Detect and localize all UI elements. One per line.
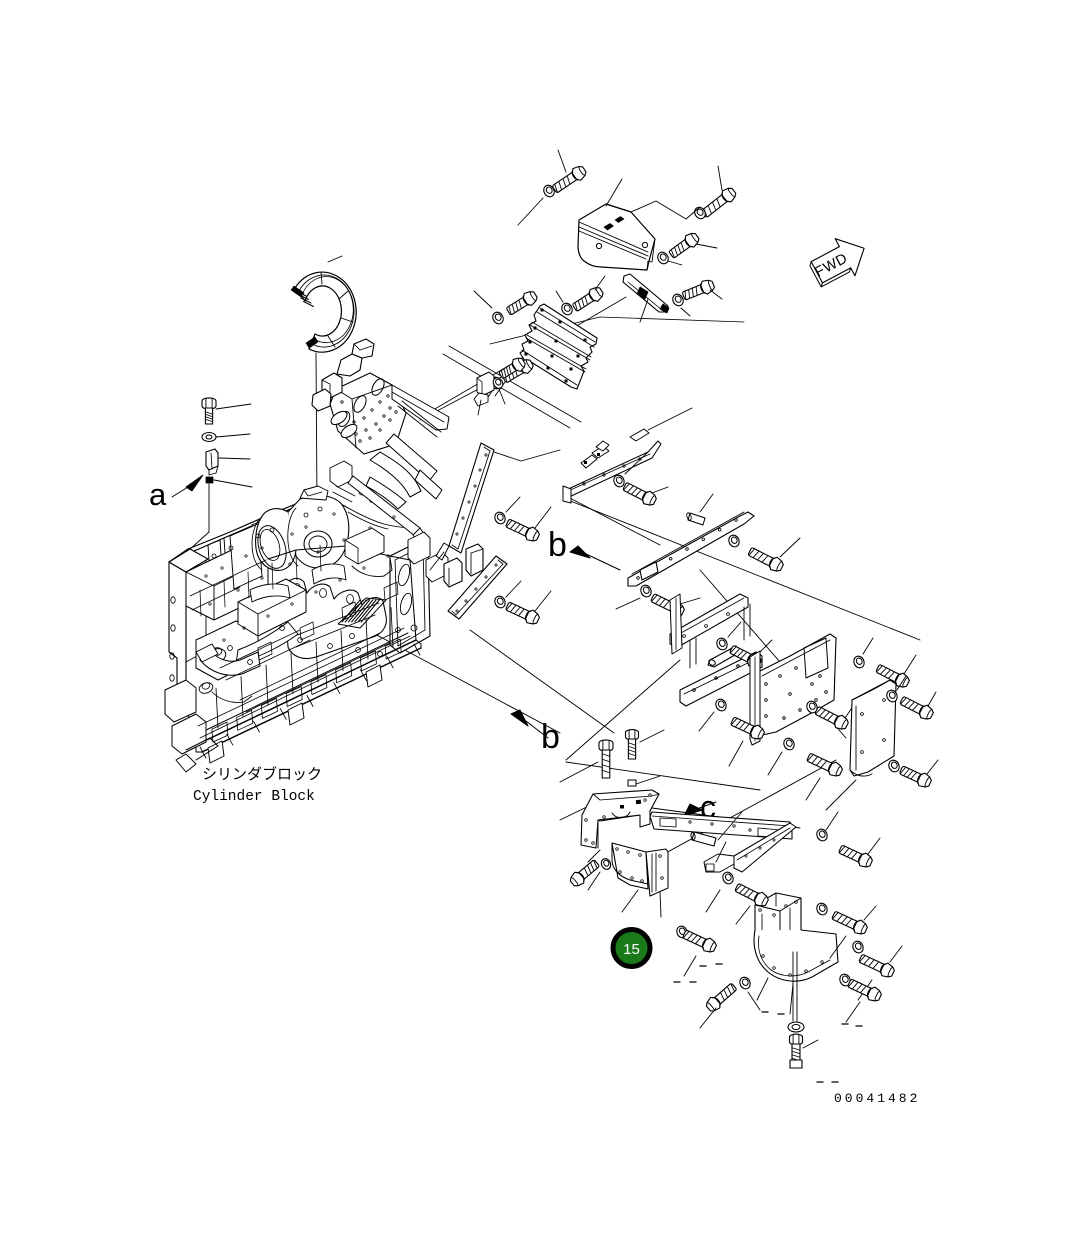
svg-text:Cylinder Block: Cylinder Block	[193, 789, 315, 805]
svg-text:a: a	[149, 477, 167, 512]
svg-text:15: 15	[623, 941, 640, 958]
svg-text:シリンダブロック: シリンダブロック	[202, 765, 322, 783]
svg-text:b: b	[548, 526, 567, 564]
svg-text:00041482: 00041482	[834, 1091, 920, 1106]
svg-text:b: b	[541, 718, 560, 756]
